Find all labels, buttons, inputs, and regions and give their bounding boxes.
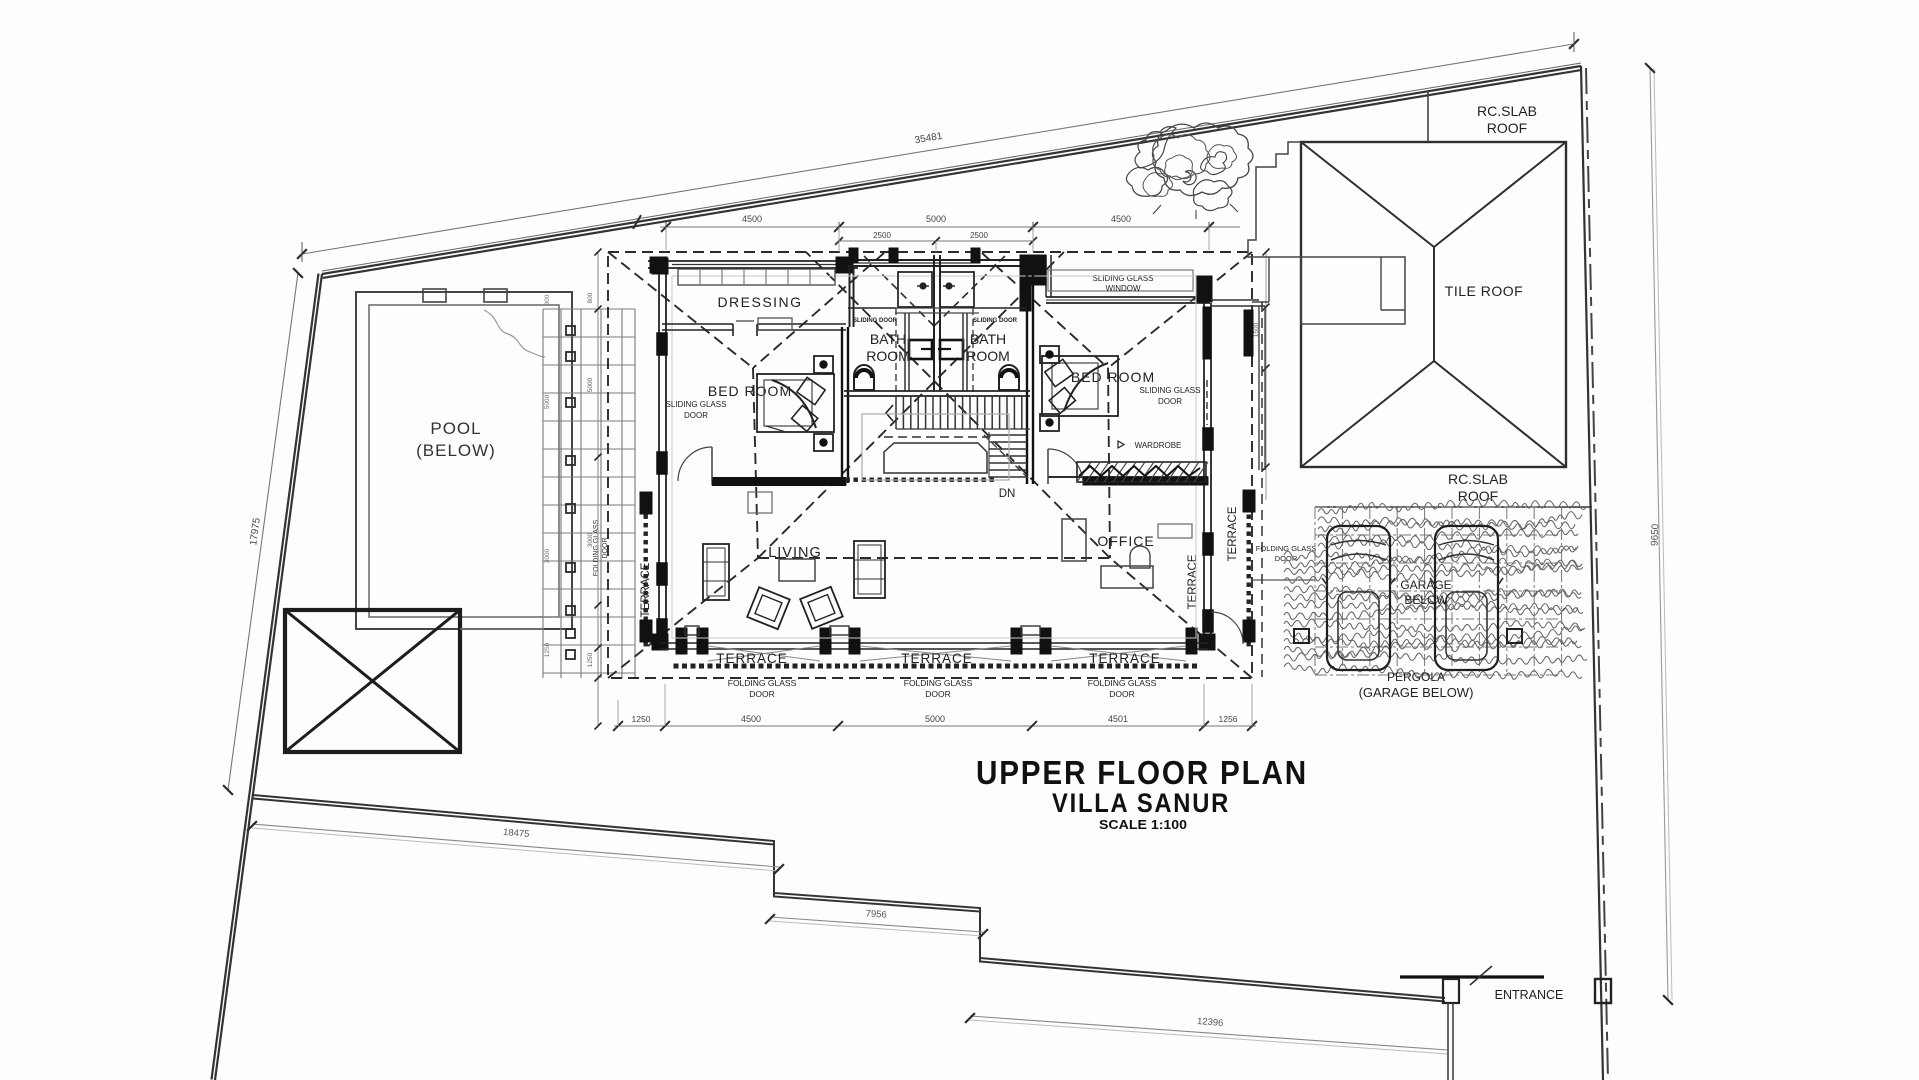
svg-text:800: 800 [544,294,551,305]
svg-text:DOOR: DOOR [1109,689,1135,699]
svg-text:OFFICE: OFFICE [1097,533,1154,549]
svg-text:5000: 5000 [926,214,946,224]
svg-text:SLIDING GLASS: SLIDING GLASS [1093,274,1154,283]
svg-text:VILLA SANUR: VILLA SANUR [1052,788,1230,818]
svg-text:1250: 1250 [587,652,594,667]
svg-text:4500: 4500 [741,714,761,724]
svg-text:PERGOLA: PERGOLA [1387,670,1445,684]
svg-text:DOOR: DOOR [749,689,775,699]
svg-text:RC.SLAB: RC.SLAB [1477,103,1537,119]
svg-text:DN: DN [999,488,1016,500]
svg-text:FOLDING GLASS: FOLDING GLASS [904,678,973,688]
svg-text:9650: 9650 [1650,523,1662,546]
svg-text:1250: 1250 [544,642,551,657]
svg-text:5000: 5000 [925,714,945,724]
svg-text:TERRACE: TERRACE [716,651,788,666]
svg-text:DOOR: DOOR [602,538,609,559]
svg-text:ROOM: ROOM [866,348,910,364]
svg-text:2500: 2500 [970,231,988,240]
svg-text:DOOR: DOOR [1158,397,1182,406]
svg-text:ROOF: ROOF [1487,120,1527,136]
svg-text:BED ROOM: BED ROOM [708,383,792,399]
svg-text:TERRACE: TERRACE [640,562,652,617]
svg-text:3000: 3000 [544,548,551,563]
svg-text:4500: 4500 [742,214,762,224]
svg-text:DRESSING: DRESSING [717,294,802,310]
svg-text:7956: 7956 [865,908,887,921]
svg-text:800: 800 [587,292,594,303]
svg-text:ROOM: ROOM [966,348,1010,364]
svg-text:ENTRANCE: ENTRANCE [1495,988,1564,1002]
svg-text:4500: 4500 [1111,214,1131,224]
svg-text:(BELOW): (BELOW) [416,441,496,460]
svg-text:BATH: BATH [970,331,1006,347]
svg-text:UPPER FLOOR PLAN: UPPER FLOOR PLAN [976,754,1308,791]
svg-text:BATH: BATH [870,331,906,347]
svg-text:4501: 4501 [1108,714,1128,724]
svg-text:2500: 2500 [873,231,891,240]
svg-text:TILE ROOF: TILE ROOF [1445,283,1523,299]
svg-text:TERRACE: TERRACE [1089,651,1161,666]
svg-text:SLIDING DOOR: SLIDING DOOR [973,318,1018,324]
svg-text:3000: 3000 [587,532,594,547]
svg-text:WARDROBE: WARDROBE [1135,441,1182,450]
svg-text:5000: 5000 [544,394,551,409]
svg-text:FOLDING GLASS: FOLDING GLASS [1088,678,1157,688]
svg-text:5000: 5000 [587,377,594,392]
svg-text:(GARAGE BELOW): (GARAGE BELOW) [1359,685,1474,700]
svg-text:1256: 1256 [1219,714,1238,724]
svg-text:SLIDING GLASS: SLIDING GLASS [1140,386,1201,395]
svg-text:GARAGE: GARAGE [1400,578,1451,592]
svg-text:BELOW: BELOW [1404,593,1448,607]
svg-text:TERRACE: TERRACE [1227,506,1239,561]
svg-text:DOOR: DOOR [684,411,708,420]
svg-text:FOLDING GLASS: FOLDING GLASS [728,678,797,688]
svg-text:TERRACE: TERRACE [901,651,973,666]
svg-text:SLIDING GLASS: SLIDING GLASS [666,400,727,409]
svg-text:FOLDING GLASS: FOLDING GLASS [593,519,600,576]
svg-text:RC.SLAB: RC.SLAB [1448,471,1508,487]
svg-text:TERRACE: TERRACE [1187,554,1199,609]
svg-text:POOL: POOL [430,419,481,438]
svg-text:1250: 1250 [632,714,651,724]
svg-text:DOOR: DOOR [1275,554,1298,563]
svg-text:SCALE 1:100: SCALE 1:100 [1099,817,1187,832]
svg-text:SLIDING DOOR: SLIDING DOOR [853,318,898,324]
svg-text:DOOR: DOOR [925,689,951,699]
svg-text:WINDOW: WINDOW [1105,284,1141,293]
svg-text:18475: 18475 [503,827,530,840]
svg-text:ROOF: ROOF [1458,488,1498,504]
svg-text:12396: 12396 [1197,1016,1224,1029]
